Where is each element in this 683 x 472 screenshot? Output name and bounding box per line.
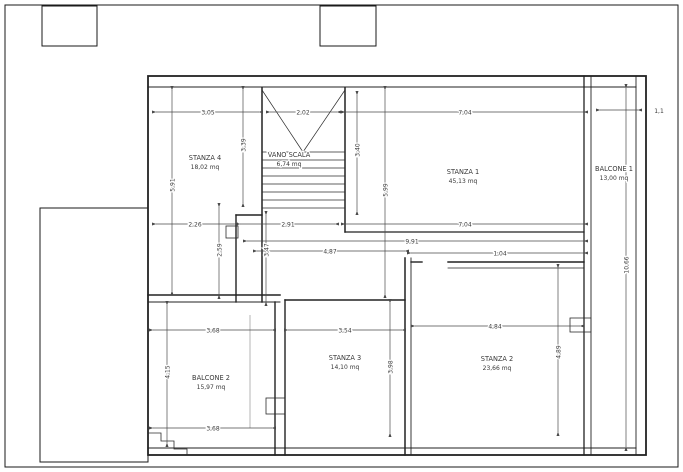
dimension-label: 1,04 xyxy=(493,251,507,258)
room-area: 15,97 mq xyxy=(197,384,226,391)
dimension-label: 4,89 xyxy=(556,345,563,359)
dimension-mid-stanza1: 7,04 xyxy=(345,222,584,229)
room-name: STANZA 4 xyxy=(189,154,221,162)
stair-direction-line xyxy=(303,90,345,152)
room-label-vano-scala: VANO SCALA 6,74 mq xyxy=(268,151,311,168)
dimension-label: 4,84 xyxy=(488,324,502,331)
dimension-label: 10,66 xyxy=(624,256,631,273)
room-area: 14,10 mq xyxy=(331,364,360,371)
adjacent-structures xyxy=(40,6,376,462)
dimension-label: 4,15 xyxy=(165,365,172,379)
room-label-stanza1: STANZA 1 45,13 mq xyxy=(447,168,479,185)
dimension-label: 2,91 xyxy=(281,222,295,229)
dimension-label: 9,91 xyxy=(405,239,419,246)
room-label-balcone1: BALCONE 1 13,00 mq xyxy=(595,165,633,182)
dimension-mid-door: 1,04 xyxy=(411,251,584,258)
dimension-mid-long: 9,91 xyxy=(247,239,584,246)
dimension-corridoio: 3,47 xyxy=(264,215,271,302)
dimension-bottom-stanza3: 3,54 xyxy=(288,328,402,335)
dimension-mid-hall: 4,87 xyxy=(257,249,405,256)
room-label-stanza2: STANZA 2 23,66 mq xyxy=(481,355,513,372)
room-label-stanza4: STANZA 4 18,02 mq xyxy=(189,154,221,171)
dimension-top-balcone1: 1,1 xyxy=(600,108,664,115)
dimension-bottom-balcone2: 3,68 xyxy=(153,328,272,335)
room-name: BALCONE 1 xyxy=(595,165,633,173)
sheet-border xyxy=(5,5,678,467)
dimension-top-stanza1: 7,04 xyxy=(345,110,584,117)
room-area: 45,13 mq xyxy=(449,178,478,185)
dimension-stanza3: 3,98 xyxy=(388,303,395,433)
floor-plan-canvas: 3,05 2,02 7,04 1,1 2,26 2,91 7,04 9,91 4… xyxy=(0,0,683,472)
left-structure xyxy=(40,208,148,462)
room-area: 6,74 mq xyxy=(277,161,302,168)
room-name: STANZA 2 xyxy=(481,355,513,363)
dimension-left-lower: 2,59 xyxy=(217,207,224,295)
dimension-label: 3,47 xyxy=(264,243,271,257)
dimension-label: 3,05 xyxy=(201,110,215,117)
dimension-label: 5,99 xyxy=(383,183,390,197)
wall-notch-stanza2 xyxy=(570,318,591,332)
dimension-label: 3,98 xyxy=(388,360,395,374)
dimension-label: 3,54 xyxy=(338,328,352,335)
dimension-label: 7,04 xyxy=(458,110,472,117)
top-structure-center xyxy=(320,6,376,46)
dimension-stanza1-left: 5,99 xyxy=(383,90,390,294)
room-name: STANZA 1 xyxy=(447,168,479,176)
dimension-label: 4,87 xyxy=(323,249,337,256)
room-name: VANO SCALA xyxy=(268,151,311,159)
room-area: 13,00 mq xyxy=(600,175,629,182)
dimension-balcone1: 10,66 xyxy=(624,88,631,447)
dimension-label: 2,59 xyxy=(217,243,224,257)
dimension-mid-left: 2,26 xyxy=(156,222,234,229)
room-label-balcone2: BALCONE 2 15,97 mq xyxy=(192,374,230,391)
staircase xyxy=(262,90,345,208)
dimension-stanza2: 4,89 xyxy=(556,268,563,432)
stair-direction-line xyxy=(262,90,303,152)
room-name: STANZA 3 xyxy=(329,354,361,362)
dimension-label: 3,39 xyxy=(241,138,248,152)
exterior-steps xyxy=(148,433,187,455)
dimension-label: 7,04 xyxy=(458,222,472,229)
interior-walls xyxy=(148,88,591,455)
dimension-label: 2,02 xyxy=(296,110,310,117)
dimension-bottom-balcone2-lower: 3,68 xyxy=(153,426,272,433)
dimension-left-stanza4: 5,91 xyxy=(170,90,177,291)
dimension-stanza4-inner: 3,39 xyxy=(241,90,248,203)
floor-plan-page: 3,05 2,02 7,04 1,1 2,26 2,91 7,04 9,91 4… xyxy=(0,0,683,472)
dimension-scala-right: 3,40 xyxy=(355,95,362,211)
room-area: 23,66 mq xyxy=(483,365,512,372)
dimension-label: 5,91 xyxy=(170,178,177,192)
dimension-label: 2,26 xyxy=(188,222,202,229)
dimension-label: 3,40 xyxy=(355,143,362,157)
dimension-label: 3,68 xyxy=(206,426,220,433)
top-structure-left xyxy=(42,6,97,46)
dimension-bottom-stanza2: 4,84 xyxy=(415,324,580,331)
room-name: BALCONE 2 xyxy=(192,374,230,382)
dimension-label: 3,68 xyxy=(206,328,220,335)
dimension-top-scala: 2,02 xyxy=(270,110,337,117)
dimension-top-stanza4: 3,05 xyxy=(156,110,259,117)
dimension-label: 1,1 xyxy=(654,108,664,115)
room-label-stanza3: STANZA 3 14,10 mq xyxy=(329,354,361,371)
room-area: 18,02 mq xyxy=(191,164,220,171)
dimension-mid-corridoio: 2,91 xyxy=(240,222,335,229)
outer-walls xyxy=(148,76,646,455)
dimension-balcone2: 4,15 xyxy=(165,305,172,443)
